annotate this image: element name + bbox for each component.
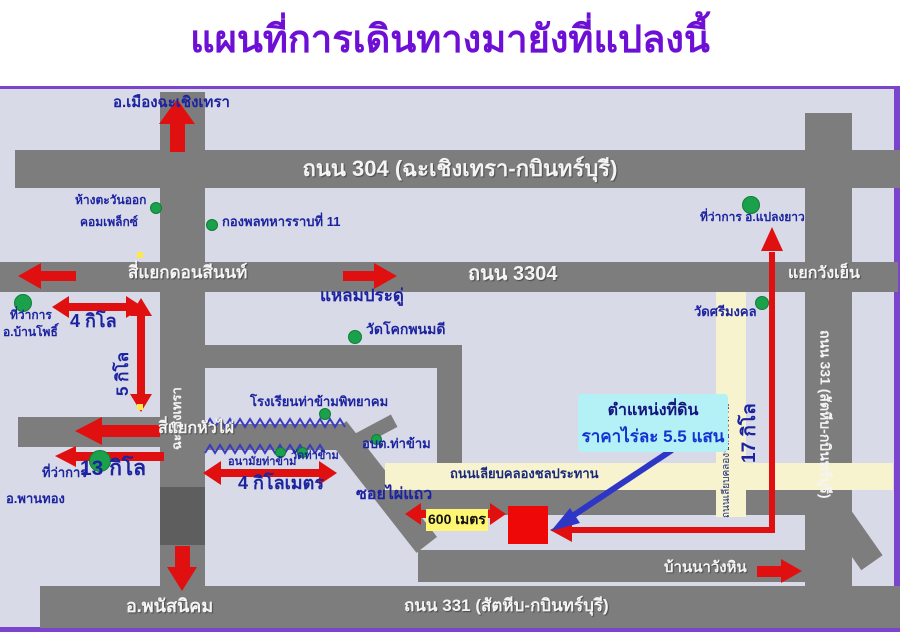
label-plaeng-yao-office: ที่ว่าการ อ.แปลงยาว (700, 211, 805, 224)
label-ban-pho-office-word: ที่ว่าการ (10, 309, 52, 322)
label-tha-kham-school: โรงเรียนท่าข้ามพิทยาคม (250, 395, 388, 409)
label-laem-pradu: แหลมประดู่ (320, 287, 404, 305)
route-arrowhead-up-icon (761, 227, 783, 251)
label-ban-pho: อ.บ้านโพธิ์ (3, 326, 58, 339)
label-dist-5-kilo: 5 กิโล (114, 326, 132, 396)
label-eastern-complex-2: คอมเพล็กซ์ (80, 216, 138, 229)
label-canal-road: ถนนเลียบคลองชลประทาน (450, 467, 599, 481)
arrow-right-ban-na-wang-hin-icon (757, 559, 802, 583)
label-dist-600-m: 600 เมตร (426, 509, 488, 531)
tha-kham-school-dot (319, 408, 331, 420)
wat-khok-phanom-di-dot (348, 330, 362, 344)
label-dist-17-kilo: 17 กิโล (740, 368, 760, 463)
label-road-304: ถนน 304 (ฉะเชิงเทรา-กบินทร์บุรี) (250, 157, 670, 180)
label-don-si-non-junction: สี่แยกดอนสีนนท์ (128, 264, 247, 282)
label-hua-phai-junction: สี่แยกหัวไผ่ (158, 421, 234, 438)
arrow-double-5-kilo-icon (130, 298, 152, 412)
eastern-complex-dot (150, 202, 162, 214)
infantry-div-11-dot (206, 219, 218, 231)
plot-pointer-line (568, 450, 672, 519)
label-infantry-div-11: กองพลทหารราบที่ 11 (222, 215, 340, 229)
arrow-left-hua-phai-icon (75, 417, 160, 445)
signal-marker-dot-2 (137, 404, 143, 410)
label-road-331-bottom: ถนน 331 (สัตหีบ-กบินทร์บุรี) (404, 597, 609, 615)
label-phan-thong-office-word: ที่ว่าการ (42, 466, 87, 480)
label-road-3304: ถนน 3304 (468, 264, 558, 285)
arrow-down-phanat-nikhom-icon (167, 546, 197, 591)
arrow-left-3304-icon (18, 263, 76, 289)
label-wat-si-mongkhon: วัดศรีมงคล (694, 305, 757, 319)
label-dist-4-kilo: 4 กิโล (70, 312, 117, 331)
label-dist-4-km: 4 กิโลเมตร (238, 474, 324, 493)
label-tha-kham-health: อนามัยท่าข้าม (228, 457, 296, 469)
label-wang-yen-junction: แยกวังเย็น (788, 266, 860, 283)
label-wat-khok-phanom-di: วัดโคกพนมดี (366, 322, 445, 337)
label-wat-tha-kham: วัดท่าข้าม (291, 451, 339, 463)
label-road-331-right: ถนน 331 (สัตหีบ-กบินทร์บุรี) (818, 330, 833, 620)
callout-price: ราคาไร่ละ 5.5 แสน (578, 423, 728, 450)
label-phanat-nikhom: อ.พนัสนิคม (126, 597, 213, 616)
callout-title: ตำแหน่งที่ดิน (578, 398, 728, 423)
label-mueang-chachoengsao: อ.เมืองฉะเชิงเทรา (113, 95, 230, 111)
label-phan-thong: อ.พานทอง (6, 492, 65, 506)
label-eastern-complex-1: ห้างตะวันออก (75, 194, 146, 207)
signal-marker-dot-1 (137, 252, 143, 258)
label-soi-phai-thaeo: ซอยไผ่แถว (356, 487, 432, 504)
land-position-callout: ตำแหน่งที่ดิน ราคาไร่ละ 5.5 แสน (578, 394, 728, 452)
label-dist-13-kilo: 13 กิโล (80, 458, 146, 480)
travel-map-document: แผนที่การเดินทางมายังที่แปลงนี้ (0, 0, 900, 632)
wat-si-mongkhon-dot (755, 296, 769, 310)
label-tha-kham-sao: อบต.ท่าข้าม (362, 437, 431, 451)
label-ban-na-wang-hin: บ้านนาวังหิน (664, 560, 747, 576)
